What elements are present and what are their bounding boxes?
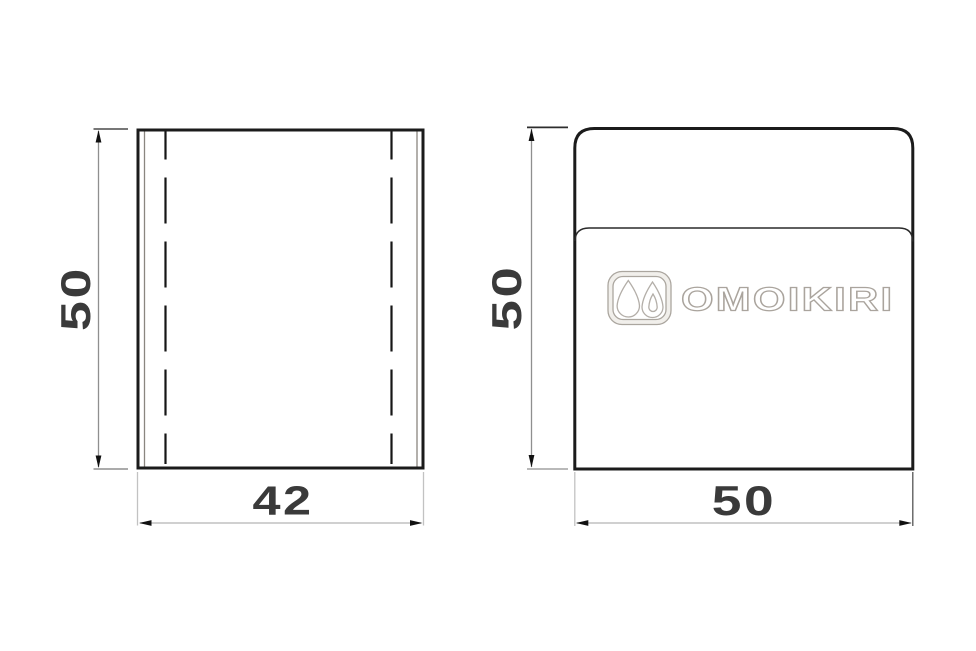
- svg-text:50: 50: [53, 266, 100, 331]
- svg-text:42: 42: [252, 477, 313, 523]
- svg-text:OMOIKIRI: OMOIKIRI: [681, 281, 894, 318]
- svg-text:50: 50: [484, 265, 531, 331]
- svg-text:50: 50: [712, 478, 776, 524]
